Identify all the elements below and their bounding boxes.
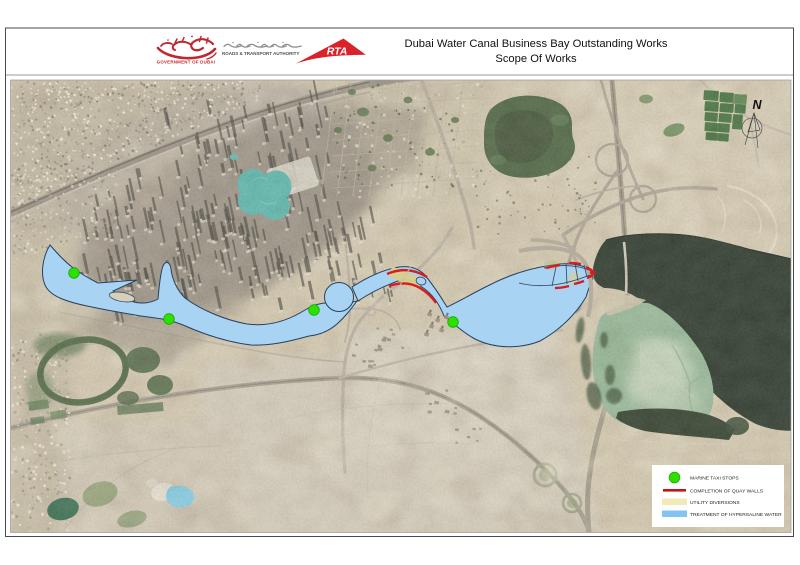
svg-text:COMPLETION OF QUAY WALLS: COMPLETION OF QUAY WALLS [690, 488, 764, 494]
svg-text:N: N [752, 98, 762, 112]
svg-text:GOVERNMENT OF DUBAI: GOVERNMENT OF DUBAI [157, 60, 216, 65]
svg-text:UTILITY DIVERSIONS: UTILITY DIVERSIONS [690, 500, 740, 506]
svg-text:TREATMENT OF HYPERSALINE WATER: TREATMENT OF HYPERSALINE WATER [690, 512, 782, 518]
svg-text:Scope Of Works: Scope Of Works [495, 53, 577, 65]
svg-text:RTA: RTA [327, 46, 348, 58]
svg-text:MARINE TAXI STOPS: MARINE TAXI STOPS [690, 476, 739, 482]
svg-text:Dubai Water Canal Business Bay: Dubai Water Canal Business Bay Outstandi… [404, 38, 667, 50]
svg-text:ROADS & TRANSPORT AUTHORITY: ROADS & TRANSPORT AUTHORITY [222, 51, 299, 56]
